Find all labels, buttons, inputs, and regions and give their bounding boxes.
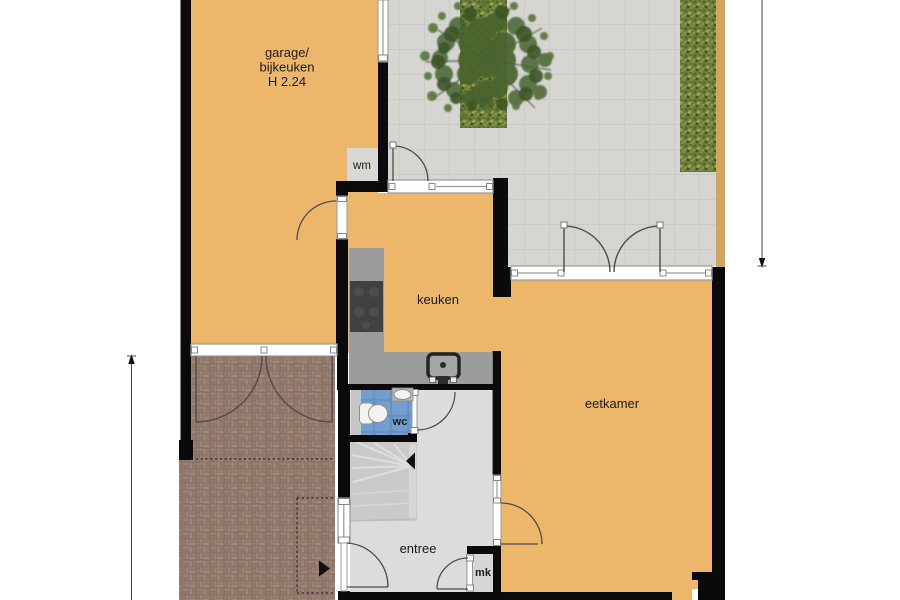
svg-text:keuken: keuken (417, 292, 459, 307)
svg-text:mk: mk (475, 567, 492, 579)
svg-text:bijkeuken: bijkeuken (260, 60, 315, 75)
svg-text:entree: entree (400, 541, 437, 556)
svg-text:wc: wc (392, 416, 408, 428)
svg-text:wm: wm (352, 160, 371, 172)
svg-text:H 2.24: H 2.24 (268, 74, 306, 89)
svg-text:eetkamer: eetkamer (585, 396, 640, 411)
svg-text:garage/: garage/ (265, 45, 309, 60)
